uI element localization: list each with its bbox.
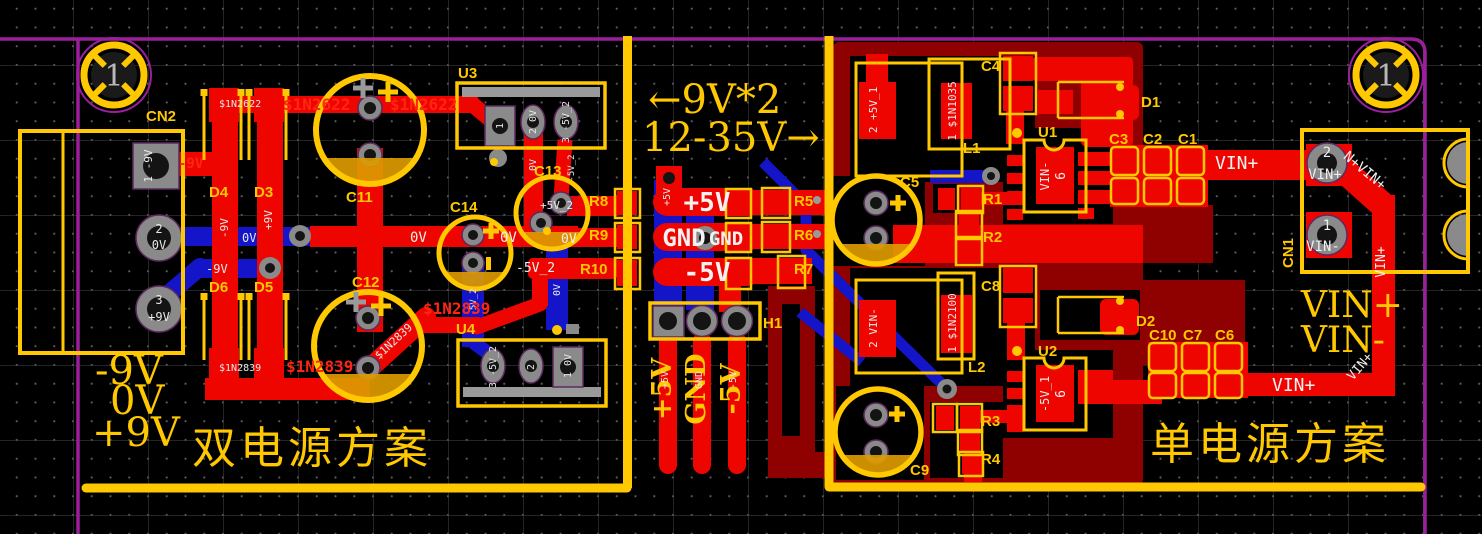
net-p5v-s: +5V (662, 188, 673, 206)
pad-label-u3-2: 2 0V (528, 110, 539, 134)
ref-r2: R2 (983, 229, 1002, 246)
ref-r4: R4 (981, 451, 1001, 468)
net-1n2622-silk: $1N2622 (219, 99, 261, 110)
net-0v-trace: 0V (410, 230, 427, 246)
pour-bump-upper[interactable] (1143, 205, 1213, 263)
net-0v-blue2: 0V (552, 284, 563, 296)
net-vinm-u1: VIN- (1038, 162, 1052, 191)
ref-d4: D4 (209, 184, 229, 201)
net-gnd-pad: GND (662, 224, 705, 252)
net-m9v-blue: -9V (206, 262, 228, 276)
ref-c3: C3 (1109, 131, 1128, 148)
ref-c2: C2 (1143, 131, 1162, 148)
pad-cn1-1-num: 1 (1323, 218, 1331, 234)
pad-label-cn2-3-net: +9V (148, 310, 170, 324)
ref-r5: R5 (794, 193, 813, 210)
pad-label-l1-1: 1 $1N1035 (946, 81, 959, 141)
net-vinp-top: VIN+ (1215, 153, 1259, 174)
pin-6-u1: 6 (1054, 172, 1069, 180)
pad-label-l1-2: 2 +5V_1 (867, 87, 880, 133)
pad-label-l2-2: 2 VIN- (867, 308, 880, 348)
pad-label-cn2-2-num: 2 (155, 222, 162, 236)
net-0v-u3: 0V (528, 159, 539, 171)
net-1n2622-b: $1N2622 (390, 95, 457, 114)
net-m9v-trace: -9V (178, 156, 204, 172)
fiducial-label: 1 (1376, 59, 1395, 94)
pad-label-cn2-3-num: 3 (155, 293, 162, 307)
trace-vinp-bottom[interactable] (1245, 373, 1395, 396)
net-d4: -9V (218, 218, 231, 238)
net-0v-trace: 0V (500, 230, 517, 246)
pad-label-u3-1: 1 (495, 123, 506, 129)
ref-c6: C6 (1215, 327, 1234, 344)
ref-c1: C1 (1178, 131, 1197, 148)
pad-cn1-2-net: VIN+ (1308, 167, 1342, 183)
net-vinp-vert: VIN+ (1374, 246, 1389, 277)
ref-h1: H1 (763, 315, 782, 332)
rail-vinm: VIN- (1300, 320, 1385, 361)
pad-label-cn2-2-net: 0V (152, 238, 166, 252)
ref-c5: C5 (900, 174, 919, 191)
title-single-supply: 单电源方案 (1150, 419, 1390, 470)
u4-tab (463, 387, 601, 397)
net-m5v-pad: -5V (684, 258, 731, 288)
ref-c4: C4 (981, 58, 1001, 75)
note-12-35v: 12-35V→ (642, 115, 820, 161)
ref-r9: R9 (589, 227, 608, 244)
pad-label-u3-3: 3 -5V_2 (561, 101, 572, 143)
ref-c8: C8 (981, 278, 1000, 295)
fiducial-label: 1 (104, 59, 123, 94)
net-gnd-pad2: GND (709, 228, 743, 250)
ref-r7: R7 (794, 261, 813, 278)
ref-c14: C14 (450, 199, 478, 216)
pad-label-u4-2: 2 (526, 364, 537, 370)
ref-cn1: CN1 (1280, 238, 1297, 268)
rail-p9v: +9V (92, 410, 181, 456)
ref-c9: C9 (910, 462, 929, 479)
stub-pad (566, 324, 579, 334)
net-m5v2-u3: -5V_2 (567, 154, 577, 181)
ref-r6: R6 (794, 227, 813, 244)
ref-u2: U2 (1038, 343, 1057, 360)
ref-r8: R8 (589, 193, 608, 210)
pin-6-u2: 6 (1054, 390, 1069, 398)
via-small (813, 230, 821, 238)
pad-label-l2-1: 1 $1N2100 (946, 293, 959, 353)
ref-c12: C12 (352, 274, 380, 291)
net-1n2839-a: $1N2839 (286, 357, 353, 376)
ref-r10: R10 (580, 261, 608, 278)
u3-tab (462, 87, 600, 97)
ref-c10: C10 (1149, 327, 1177, 344)
net-m5v1-u2: -5V_1 (1038, 376, 1052, 412)
ref-l2: L2 (968, 359, 986, 376)
via-small (813, 196, 821, 204)
ref-u4: U4 (456, 321, 476, 338)
net-1n2839-b: $1N2839 (423, 299, 490, 318)
net-vinp-bottom: VIN+ (1272, 375, 1316, 396)
net-m5v2: -5V_2 (516, 261, 555, 276)
pcb-editor-canvas: 1 1 CN2 D4 D3 D6 D5 C11 C12 C13 C14 U3 U… (0, 0, 1482, 534)
ref-u3: U3 (458, 65, 477, 82)
ref-l1: L1 (963, 140, 981, 157)
net-d3: +9V (262, 210, 275, 230)
pad-cn1-1-net: VIN- (1306, 239, 1340, 255)
ref-c7: C7 (1183, 327, 1202, 344)
net-gnd-t: GND (694, 371, 705, 389)
net-1n2839-silk: $1N2839 (219, 363, 261, 374)
ref-d1: D1 (1141, 94, 1160, 111)
pad-label-u4-3: 3 -5V_2 (488, 346, 499, 388)
pad-label-cn2-1: 1 -9V (142, 149, 155, 182)
pad-label-u4-1: 1 0V (563, 354, 574, 378)
ref-d3: D3 (254, 184, 273, 201)
ref-d5: D5 (254, 279, 273, 296)
ref-r1: R1 (983, 191, 1002, 208)
net-p5v-pad: +5V (684, 188, 731, 218)
trace-mid-band[interactable] (893, 225, 1143, 263)
ref-c11: C11 (346, 189, 373, 206)
ref-cn2: CN2 (146, 108, 176, 125)
pad-cn1-2-num: 2 (1323, 145, 1331, 161)
ref-u1: U1 (1038, 124, 1057, 141)
net-0v-blue: 0V (242, 231, 256, 245)
net-0v: 0V (561, 232, 577, 247)
ref-r3: R3 (981, 413, 1000, 430)
title-dual-supply: 双电源方案 (192, 423, 432, 474)
ref-d6: D6 (209, 279, 228, 296)
net-1n2622-a: $1N2622 (283, 95, 350, 114)
net-p5v-t: +5V (660, 371, 671, 389)
diode-bar-d3-d5[interactable] (257, 88, 283, 382)
net-p5v2: +5V_2 (540, 199, 573, 212)
net-m5v-t: -5V (728, 371, 739, 389)
